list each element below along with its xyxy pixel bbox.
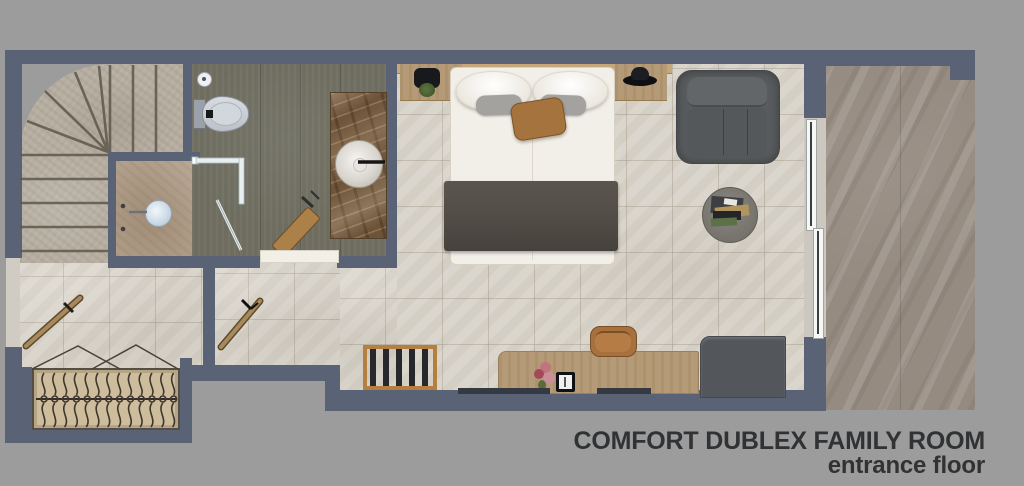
glass-line bbox=[817, 231, 819, 334]
wall-shower-left bbox=[108, 161, 116, 268]
wall-bathroom-right bbox=[386, 64, 397, 256]
plan-title: COMFORT DUBLEX FAMILY ROOM entrance floo… bbox=[574, 428, 985, 479]
round-side-table bbox=[702, 187, 758, 243]
balcony-joint bbox=[900, 66, 901, 410]
wall-wardrobe-right bbox=[180, 358, 192, 443]
plant bbox=[419, 83, 435, 97]
wall-wardrobe-bottom bbox=[5, 430, 192, 443]
bathroom-door-sill bbox=[260, 250, 339, 263]
wall-bathroom-bottom-east bbox=[337, 256, 397, 268]
wall-step bbox=[325, 365, 340, 411]
wardrobe bbox=[32, 368, 180, 430]
rack-strap bbox=[370, 349, 376, 386]
cabinet bbox=[700, 336, 786, 398]
wall-bathroom-bottom-west bbox=[108, 256, 260, 268]
bed-throw bbox=[444, 181, 618, 251]
armchair bbox=[676, 70, 780, 164]
wall-shower-top bbox=[108, 152, 200, 161]
armchair-seat bbox=[687, 107, 767, 157]
desk-chair-seat bbox=[595, 331, 631, 352]
wall-top-right-notch bbox=[950, 50, 975, 80]
wall-stair-bathroom bbox=[183, 64, 192, 161]
wall-left-lower bbox=[5, 347, 22, 443]
tablet-screen-line bbox=[564, 377, 566, 387]
window-sill bbox=[458, 388, 550, 394]
toilet-seat bbox=[209, 102, 242, 126]
floor-entry-hall bbox=[18, 263, 203, 368]
window-sill bbox=[597, 388, 651, 394]
flower-vase bbox=[534, 362, 558, 390]
tablet bbox=[556, 372, 575, 392]
book-green bbox=[711, 217, 737, 226]
sink-hub bbox=[353, 158, 367, 172]
rack-strap bbox=[396, 349, 402, 386]
armchair-seam bbox=[747, 109, 748, 155]
floor-vestibule bbox=[203, 256, 340, 365]
floor-balcony bbox=[826, 66, 975, 410]
rack-strap bbox=[409, 349, 415, 386]
floor-drain bbox=[197, 72, 212, 87]
floor-plan-canvas: COMFORT DUBLEX FAMILY ROOM entrance floo… bbox=[0, 0, 1024, 486]
wall-left-upper bbox=[5, 50, 22, 258]
tablet-screen bbox=[559, 375, 572, 389]
bathroom-floor-joint bbox=[260, 64, 261, 256]
plan-title-line2: entrance floor bbox=[574, 454, 985, 479]
entry-threshold bbox=[6, 258, 20, 347]
round-sink bbox=[335, 140, 383, 188]
table-lamp-right-crown bbox=[631, 67, 649, 80]
wall-right-lower bbox=[804, 337, 826, 411]
armchair-back-cushion bbox=[687, 77, 767, 107]
luggage-rack bbox=[363, 345, 437, 390]
wall-wardrobe-left bbox=[22, 367, 32, 430]
glass-line bbox=[810, 122, 812, 226]
rack-strap bbox=[383, 349, 389, 386]
toilet-flush-button bbox=[206, 110, 213, 118]
armchair-seam bbox=[723, 109, 724, 155]
desk-chair bbox=[590, 326, 637, 357]
sliding-door-panel-lower bbox=[813, 228, 824, 339]
sliding-door-panel-upper bbox=[806, 119, 817, 231]
wall-vestibule-left bbox=[203, 266, 215, 365]
plan-title-line1: COMFORT DUBLEX FAMILY ROOM bbox=[574, 428, 985, 454]
wall-right-upper bbox=[804, 50, 826, 118]
rack-strap bbox=[422, 349, 428, 386]
shower-head bbox=[145, 200, 172, 227]
drain-dot bbox=[202, 77, 206, 81]
wall-hall-bottom bbox=[192, 365, 340, 381]
